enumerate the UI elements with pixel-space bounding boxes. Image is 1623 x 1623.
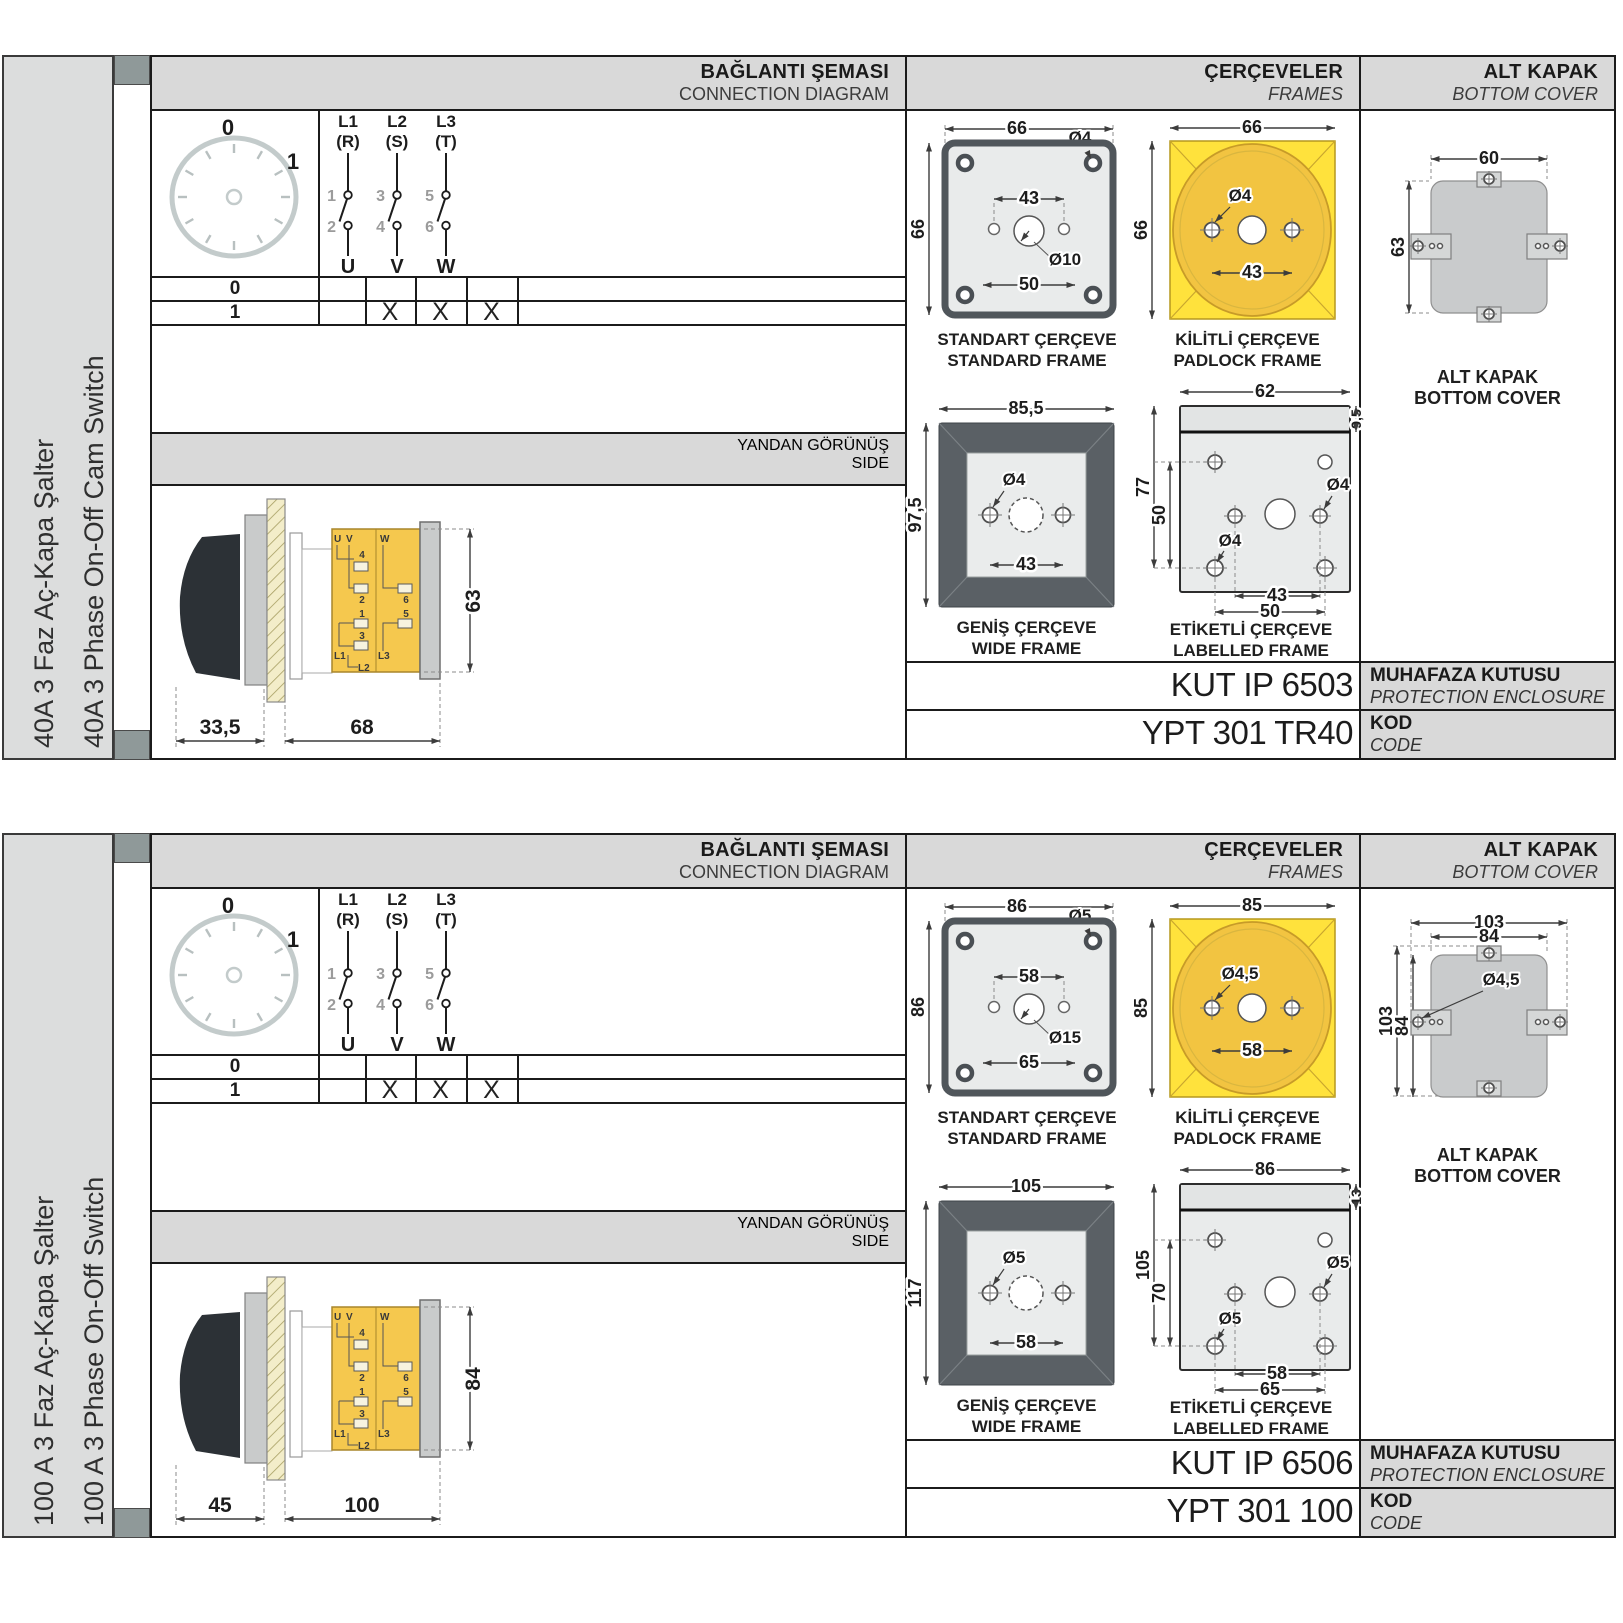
table-row0-pos: 0 xyxy=(152,278,318,300)
dim-hole-span: 58 xyxy=(1242,1040,1262,1060)
phase-alt: (S) xyxy=(386,910,409,929)
contacts-drawing: L1 (R) 1 2 U L2 (S) xyxy=(318,111,658,276)
dia-hole-2: Ø5 xyxy=(1219,1309,1242,1328)
dim-frame-width: 85,5 xyxy=(1008,398,1043,418)
standard-frame-drawing: 86 Ø5 86 58 Ø15 xyxy=(917,893,1137,1103)
wide-frame-drawing: 85,5 97,5 Ø4 43 xyxy=(914,397,1139,615)
header-frames: ÇERÇEVELER FRAMES xyxy=(907,57,1359,111)
dim-frame-height: 105 xyxy=(1133,1250,1153,1280)
terminal-2: 2 xyxy=(359,1373,365,1384)
dial-position-0: 0 xyxy=(222,893,234,918)
header-connection-en: CONNECTION DIAGRAM xyxy=(152,84,889,105)
divider-frames xyxy=(905,57,907,758)
dim-hole-span: 58 xyxy=(1016,1332,1036,1352)
code-label-tr: KOD xyxy=(1370,1491,1614,1513)
side-view-header-tr: YANDAN GÖRÜNÜŞ xyxy=(152,1215,889,1233)
wide-frame-drawing: 105 117 Ø5 58 xyxy=(914,1175,1139,1393)
phase-name: L3 xyxy=(436,890,456,909)
header-connection: BAĞLANTI ŞEMASI CONNECTION DIAGRAM xyxy=(152,57,905,111)
caption-tr: STANDART ÇERÇEVE xyxy=(917,329,1137,350)
terminal-v: V xyxy=(346,534,353,545)
table-row0-pos: 0 xyxy=(152,1056,318,1078)
dim-outer-span: 65 xyxy=(1260,1379,1280,1399)
content-frame: BAĞLANTI ŞEMASI CONNECTION DIAGRAM ÇERÇE… xyxy=(150,833,1616,1538)
phase-alt: (T) xyxy=(435,132,457,151)
sidebar-label-tr: 40A 3 Faz Aç-Kapa Şalter xyxy=(29,439,60,748)
phase-out: V xyxy=(390,1034,404,1056)
caption-tr: ETİKETLİ ÇERÇEVE xyxy=(1140,1397,1362,1418)
caption-tr: KİLİTLİ ÇERÇEVE xyxy=(1140,329,1355,350)
caption-tr: STANDART ÇERÇEVE xyxy=(917,1107,1137,1128)
contacts-drawing: L1 (R) 1 2 U L2 (S) xyxy=(318,889,658,1054)
header-cover-tr: ALT KAPAK xyxy=(1361,60,1598,84)
terminal-l3: L3 xyxy=(378,651,390,662)
caption-tr: GENİŞ ÇERÇEVE xyxy=(914,617,1139,638)
dim-front-depth: 45 xyxy=(208,1494,232,1517)
caption-en: PADLOCK FRAME xyxy=(1140,350,1355,371)
phase-out: W xyxy=(437,256,456,278)
binder-strip xyxy=(114,833,150,1538)
side-view-header: YANDAN GÖRÜNÜŞ SIDE xyxy=(152,432,905,486)
switch-dial-drawing: 0 1 xyxy=(152,889,318,1054)
binder-square-bottom xyxy=(114,1508,150,1538)
sidebar-label-en: 40A 3 Phase On-Off Cam Switch xyxy=(79,355,110,748)
sidebar-100a: 100 A 3 Faz Aç-Kapa Şalter 100 A 3 Phase… xyxy=(2,833,114,1538)
phase-l3: L3 (T) 5 6 W xyxy=(425,890,457,1056)
side-view-header-en: SIDE xyxy=(152,455,889,473)
dim-frame-height: 66 xyxy=(1131,220,1151,240)
dim-frame-height: 85 xyxy=(1131,998,1151,1018)
dim-hole-span: 58 xyxy=(1019,966,1039,986)
phase-alt: (R) xyxy=(336,910,360,929)
terminal-3: 3 xyxy=(359,631,365,642)
table-mark: X xyxy=(466,301,517,324)
padlock-frame-caption: KİLİTLİ ÇERÇEVE PADLOCK FRAME xyxy=(1140,329,1355,371)
phase-out: W xyxy=(437,1034,456,1056)
terminal-6: 6 xyxy=(403,595,409,606)
dim-hole-span-v: 70 xyxy=(1149,1283,1169,1303)
section-100a: 100 A 3 Faz Aç-Kapa Şalter 100 A 3 Phase… xyxy=(0,833,1623,1538)
phase-alt: (T) xyxy=(435,910,457,929)
dim-hole-span: 43 xyxy=(1019,188,1039,208)
enclosure-label-en: PROTECTION ENCLOSURE xyxy=(1370,687,1614,708)
caption-en: LABELLED FRAME xyxy=(1140,1418,1362,1439)
terminal-u: U xyxy=(334,534,341,545)
header-cover-en: BOTTOM COVER xyxy=(1361,84,1598,105)
caption-en: BOTTOM COVER xyxy=(1361,388,1614,409)
dim-frame-width: 66 xyxy=(1007,118,1027,138)
terminal-3: 3 xyxy=(359,1409,365,1420)
table-divider xyxy=(318,889,320,1104)
phase-l2: L2 (S) 3 4 V xyxy=(376,890,408,1056)
dim-cover-width: 84 xyxy=(1479,926,1499,946)
header-frames-tr: ÇERÇEVELER xyxy=(907,60,1343,84)
binder-square-bottom xyxy=(114,730,150,760)
terminal-number: 6 xyxy=(425,997,434,1014)
side-view-drawing: U V 4 2 1 3 L1 L2 W xyxy=(172,1267,652,1535)
dia-hole: Ø4 xyxy=(1003,470,1026,489)
code-label-en: CODE xyxy=(1370,735,1614,756)
enclosure-label-tr: MUHAFAZA KUTUSU xyxy=(1370,665,1614,687)
labelled-frame-drawing: 62 9,5 77 50 xyxy=(1140,382,1362,617)
code-label-box: KOD CODE xyxy=(1361,711,1614,758)
header-connection-en: CONNECTION DIAGRAM xyxy=(152,862,889,883)
table-line xyxy=(152,1102,905,1104)
dial-position-1: 1 xyxy=(287,149,299,174)
table-divider xyxy=(318,111,320,326)
dim-frame-width: 86 xyxy=(1007,896,1027,916)
caption-tr: GENİŞ ÇERÇEVE xyxy=(914,1395,1139,1416)
dial-position-1: 1 xyxy=(287,927,299,952)
phase-l1: L1 (R) 1 2 U xyxy=(327,112,360,278)
terminal-1: 1 xyxy=(359,609,365,620)
dim-outer-span: 65 xyxy=(1019,1052,1039,1072)
dia-cover-hole: Ø4,5 xyxy=(1483,970,1520,989)
terminal-6: 6 xyxy=(403,1373,409,1384)
terminal-l1: L1 xyxy=(334,1429,346,1440)
terminal-l3: L3 xyxy=(378,1429,390,1440)
padlock-frame-drawing: 66 66 Ø4 43 xyxy=(1140,115,1355,325)
header-cover: ALT KAPAK BOTTOM COVER xyxy=(1361,835,1614,889)
enclosure-label-box: MUHAFAZA KUTUSU PROTECTION ENCLOSURE xyxy=(1361,1441,1614,1487)
dim-frame-width: 86 xyxy=(1255,1159,1275,1179)
phase-name: L1 xyxy=(338,112,358,131)
bottom-cover-drawing: 103 84 103 84 xyxy=(1389,915,1589,1141)
phase-out: V xyxy=(390,256,404,278)
terminal-number: 2 xyxy=(327,997,336,1014)
standard-frame-caption: STANDART ÇERÇEVE STANDARD FRAME xyxy=(917,329,1137,371)
product-code: YPT 301 100 xyxy=(907,1489,1353,1533)
header-connection-tr: BAĞLANTI ŞEMASI xyxy=(152,60,889,84)
dim-frame-width: 66 xyxy=(1242,117,1262,137)
labelled-frame-drawing: 86 13 105 70 xyxy=(1140,1160,1362,1395)
phase-out: U xyxy=(341,256,355,278)
dim-outer-span: 50 xyxy=(1019,274,1039,294)
divider-frames xyxy=(905,835,907,1536)
labelled-frame-caption: ETİKETLİ ÇERÇEVE LABELLED FRAME xyxy=(1140,619,1362,661)
table-line xyxy=(152,324,905,326)
code-label-en: CODE xyxy=(1370,1513,1614,1534)
caption-en: STANDARD FRAME xyxy=(917,1128,1137,1149)
standard-frame-drawing: 66 Ø4 66 43 Ø10 xyxy=(917,115,1137,325)
table-mark: X xyxy=(415,301,466,324)
sidebar-40a: 40A 3 Faz Aç-Kapa Şalter 40A 3 Phase On-… xyxy=(2,55,114,760)
phase-l3: L3 (T) 5 6 W xyxy=(425,112,457,278)
terminal-l2: L2 xyxy=(358,663,370,674)
terminal-5: 5 xyxy=(403,1387,409,1398)
header-cover-en: BOTTOM COVER xyxy=(1361,862,1598,883)
dim-body-depth: 100 xyxy=(344,1494,379,1517)
content-frame: BAĞLANTI ŞEMASI CONNECTION DIAGRAM ÇERÇE… xyxy=(150,55,1616,760)
table-mark: X xyxy=(466,1079,517,1102)
dia-hole-2: Ø4 xyxy=(1219,531,1242,550)
table-row1-pos: 1 xyxy=(152,1080,318,1102)
dia-hole: Ø5 xyxy=(1003,1248,1026,1267)
table-divider xyxy=(517,276,519,326)
dim-body-height: 84 xyxy=(462,1367,485,1391)
caption-tr: ALT KAPAK xyxy=(1361,1145,1614,1166)
dim-cover-height: 84 xyxy=(1392,1016,1412,1036)
dim-hole-span: 43 xyxy=(1242,262,1262,282)
phase-name: L1 xyxy=(338,890,358,909)
dial-position-0: 0 xyxy=(222,115,234,140)
table-divider xyxy=(517,1054,519,1104)
phase-out: U xyxy=(341,1034,355,1056)
section-40a: 40A 3 Faz Aç-Kapa Şalter 40A 3 Phase On-… xyxy=(0,55,1623,760)
terminal-number: 6 xyxy=(425,219,434,236)
code-label-tr: KOD xyxy=(1370,713,1614,735)
terminal-w: W xyxy=(380,534,390,545)
dim-hole-span-v: 50 xyxy=(1149,505,1169,525)
labelled-frame-caption: ETİKETLİ ÇERÇEVE LABELLED FRAME xyxy=(1140,1397,1362,1439)
terminal-number: 4 xyxy=(376,219,385,236)
header-frames: ÇERÇEVELER FRAMES xyxy=(907,835,1359,889)
terminal-number: 1 xyxy=(327,188,336,205)
terminal-number: 5 xyxy=(425,966,434,983)
terminal-w: W xyxy=(380,1312,390,1323)
caption-en: WIDE FRAME xyxy=(914,638,1139,659)
dim-body-depth: 68 xyxy=(350,716,374,739)
side-view-header: YANDAN GÖRÜNÜŞ SIDE xyxy=(152,1210,905,1264)
terminal-number: 3 xyxy=(376,188,385,205)
terminal-4: 4 xyxy=(359,1328,365,1339)
dim-frame-width: 105 xyxy=(1011,1176,1041,1196)
dim-cover-width: 60 xyxy=(1479,148,1499,168)
terminal-l1: L1 xyxy=(334,651,346,662)
terminal-v: V xyxy=(346,1312,353,1323)
dim-cover-height: 63 xyxy=(1388,237,1408,257)
enclosure-code: KUT IP 6506 xyxy=(907,1441,1353,1485)
phase-alt: (S) xyxy=(386,132,409,151)
dim-frame-height: 77 xyxy=(1133,477,1153,497)
table-mark: X xyxy=(415,1079,466,1102)
header-connection-tr: BAĞLANTI ŞEMASI xyxy=(152,838,889,862)
caption-tr: ALT KAPAK xyxy=(1361,367,1614,388)
code-label-box: KOD CODE xyxy=(1361,1489,1614,1536)
padlock-frame-caption: KİLİTLİ ÇERÇEVE PADLOCK FRAME xyxy=(1140,1107,1355,1149)
standard-frame-caption: STANDART ÇERÇEVE STANDARD FRAME xyxy=(917,1107,1137,1149)
dia-hole: Ø4,5 xyxy=(1222,964,1259,983)
dia-center-hole: Ø15 xyxy=(1049,1028,1081,1047)
wide-frame-caption: GENİŞ ÇERÇEVE WIDE FRAME xyxy=(914,1395,1139,1437)
terminal-u: U xyxy=(334,1312,341,1323)
header-connection: BAĞLANTI ŞEMASI CONNECTION DIAGRAM xyxy=(152,835,905,889)
dim-front-depth: 33,5 xyxy=(200,716,241,739)
terminal-number: 4 xyxy=(376,997,385,1014)
dim-frame-height: 97,5 xyxy=(905,497,925,532)
enclosure-label-box: MUHAFAZA KUTUSU PROTECTION ENCLOSURE xyxy=(1361,663,1614,709)
phase-alt: (R) xyxy=(336,132,360,151)
terminal-l2: L2 xyxy=(358,1441,370,1452)
header-frames-en: FRAMES xyxy=(907,862,1343,883)
dim-outer-span: 50 xyxy=(1260,601,1280,621)
bottom-cover-drawing: 60 63 xyxy=(1389,145,1589,359)
dia-hole-1: Ø4 xyxy=(1327,475,1350,494)
caption-en: BOTTOM COVER xyxy=(1361,1166,1614,1187)
table-row1-pos: 1 xyxy=(152,302,318,324)
bottom-cover-caption: ALT KAPAK BOTTOM COVER xyxy=(1361,367,1614,409)
catalog-page: 40A 3 Faz Aç-Kapa Şalter 40A 3 Phase On-… xyxy=(0,0,1623,1623)
header-frames-tr: ÇERÇEVELER xyxy=(907,838,1343,862)
terminal-number: 5 xyxy=(425,188,434,205)
terminal-2: 2 xyxy=(359,595,365,606)
bottom-cover-caption: ALT KAPAK BOTTOM COVER xyxy=(1361,1145,1614,1187)
side-view-header-en: SIDE xyxy=(152,1233,889,1251)
table-mark: X xyxy=(365,1079,415,1102)
table-mark: X xyxy=(365,301,415,324)
dim-frame-height: 86 xyxy=(908,997,928,1017)
dim-frame-height: 66 xyxy=(908,219,928,239)
dim-hole-span: 43 xyxy=(1016,554,1036,574)
phase-name: L2 xyxy=(387,890,407,909)
header-frames-en: FRAMES xyxy=(907,84,1343,105)
terminal-4: 4 xyxy=(359,550,365,561)
dia-hole-1: Ø5 xyxy=(1327,1253,1350,1272)
switch-dial-drawing: 0 1 xyxy=(152,111,318,276)
enclosure-label-en: PROTECTION ENCLOSURE xyxy=(1370,1465,1614,1486)
header-cover-tr: ALT KAPAK xyxy=(1361,838,1598,862)
binder-strip xyxy=(114,55,150,760)
dia-hole: Ø4 xyxy=(1229,186,1252,205)
terminal-number: 3 xyxy=(376,966,385,983)
dim-frame-width: 85 xyxy=(1242,895,1262,915)
terminal-1: 1 xyxy=(359,1387,365,1398)
terminal-number: 1 xyxy=(327,966,336,983)
wide-frame-caption: GENİŞ ÇERÇEVE WIDE FRAME xyxy=(914,617,1139,659)
dim-frame-width: 62 xyxy=(1255,381,1275,401)
product-code: YPT 301 TR40 xyxy=(907,711,1353,755)
binder-square-top xyxy=(114,833,150,863)
side-view-header-tr: YANDAN GÖRÜNÜŞ xyxy=(152,437,889,455)
sidebar-label-tr: 100 A 3 Faz Aç-Kapa Şalter xyxy=(29,1196,60,1526)
header-cover: ALT KAPAK BOTTOM COVER xyxy=(1361,57,1614,111)
dim-body-height: 63 xyxy=(462,589,485,612)
phase-l2: L2 (S) 3 4 V xyxy=(376,112,408,278)
enclosure-label-tr: MUHAFAZA KUTUSU xyxy=(1370,1443,1614,1465)
phase-name: L2 xyxy=(387,112,407,131)
caption-tr: ETİKETLİ ÇERÇEVE xyxy=(1140,619,1362,640)
sidebar-label-en: 100 A 3 Phase On-Off Switch xyxy=(79,1177,110,1526)
caption-en: WIDE FRAME xyxy=(914,1416,1139,1437)
caption-tr: KİLİTLİ ÇERÇEVE xyxy=(1140,1107,1355,1128)
binder-square-top xyxy=(114,55,150,85)
phase-l1: L1 (R) 1 2 U xyxy=(327,890,360,1056)
side-view-drawing: U V 4 2 1 3 L1 L2 W xyxy=(172,489,652,757)
terminal-5: 5 xyxy=(403,609,409,620)
caption-en: PADLOCK FRAME xyxy=(1140,1128,1355,1149)
dia-center-hole: Ø10 xyxy=(1049,250,1081,269)
caption-en: STANDARD FRAME xyxy=(917,350,1137,371)
dim-frame-height: 117 xyxy=(905,1278,925,1307)
enclosure-code: KUT IP 6503 xyxy=(907,663,1353,707)
padlock-frame-drawing: 85 85 Ø4,5 58 xyxy=(1140,893,1355,1103)
terminal-number: 2 xyxy=(327,219,336,236)
phase-name: L3 xyxy=(436,112,456,131)
caption-en: LABELLED FRAME xyxy=(1140,640,1362,661)
